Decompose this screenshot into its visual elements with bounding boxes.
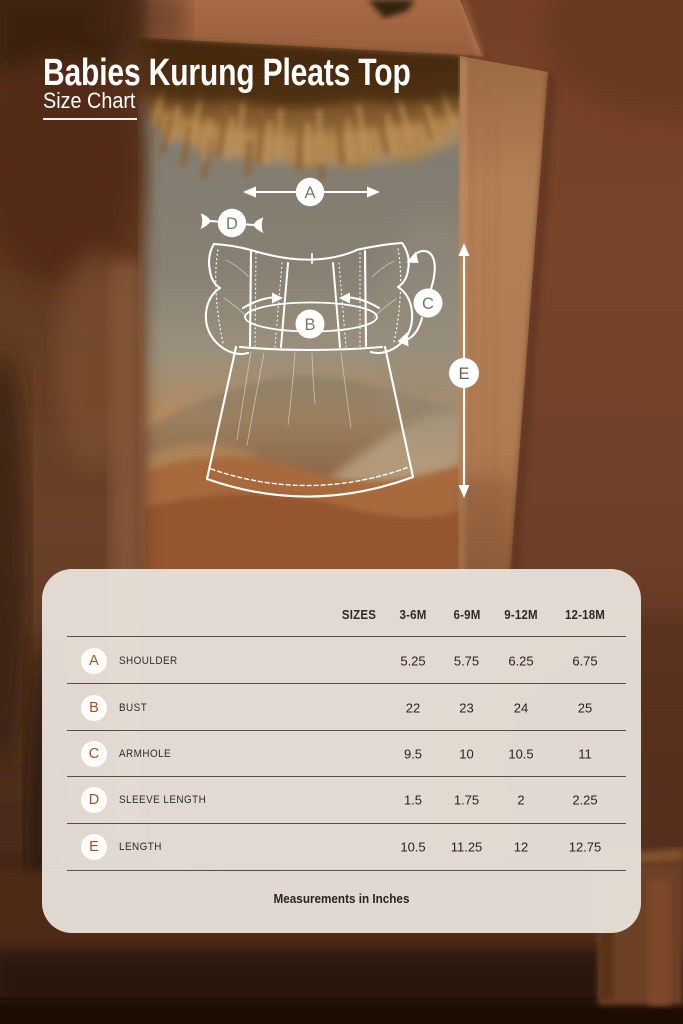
svg-text:E: E bbox=[458, 365, 469, 383]
svg-text:D: D bbox=[226, 215, 238, 233]
svg-text:A: A bbox=[304, 184, 315, 202]
svg-text:B: B bbox=[304, 316, 315, 334]
svg-text:C: C bbox=[422, 295, 434, 313]
